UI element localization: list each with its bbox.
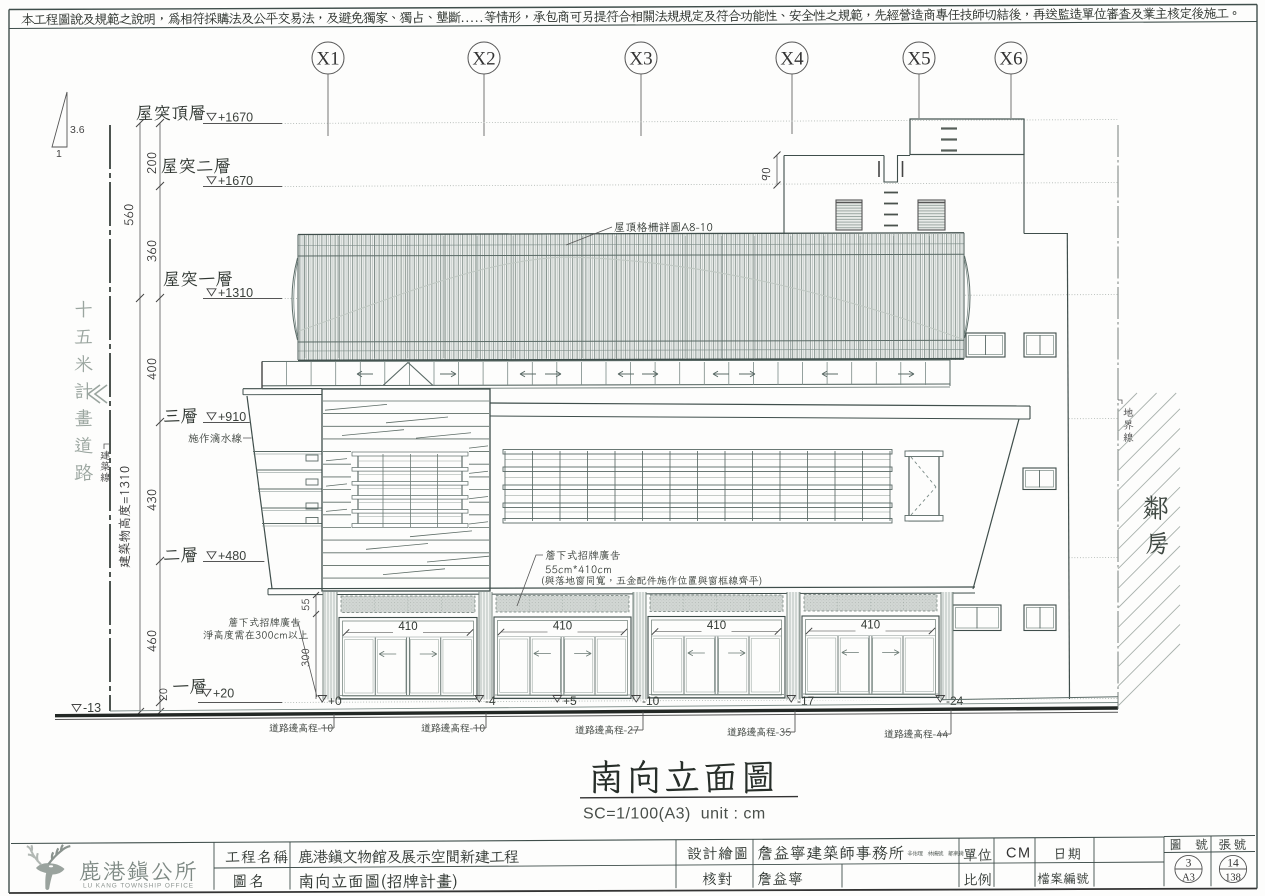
svg-text:+1670: +1670	[218, 174, 253, 188]
svg-text:X5: X5	[907, 49, 930, 70]
svg-text:CM: CM	[1006, 846, 1032, 862]
svg-text:+5: +5	[563, 694, 577, 708]
svg-text:3: 3	[1186, 858, 1192, 870]
svg-text:14: 14	[1227, 858, 1239, 870]
svg-text:410: 410	[861, 620, 880, 632]
svg-text:-13: -13	[83, 701, 101, 715]
svg-text:410: 410	[707, 620, 726, 632]
svg-text:X6: X6	[999, 49, 1022, 70]
svg-text:A3: A3	[1182, 873, 1195, 884]
svg-text:+0: +0	[328, 694, 342, 708]
svg-text:LU KANG TOWNSHIP OFFICE: LU KANG TOWNSHIP OFFICE	[83, 883, 194, 890]
svg-text:+480: +480	[218, 549, 246, 563]
svg-text:-17: -17	[797, 694, 815, 708]
svg-text:+910: +910	[218, 410, 246, 424]
svg-text:-10: -10	[642, 694, 660, 708]
svg-text:X3: X3	[629, 49, 652, 70]
svg-text:410: 410	[553, 621, 572, 633]
svg-text:+1310: +1310	[218, 286, 253, 300]
svg-text:-4: -4	[485, 694, 496, 708]
svg-text:SC=1/100(A3) unit : cm: SC=1/100(A3) unit : cm	[583, 806, 766, 823]
svg-text:+1670: +1670	[218, 111, 253, 125]
svg-text:X4: X4	[780, 49, 804, 70]
svg-text:X1: X1	[316, 49, 339, 70]
svg-text:3.6: 3.6	[70, 124, 85, 136]
svg-text:+20: +20	[213, 687, 234, 701]
svg-text:-24: -24	[946, 694, 964, 708]
svg-text:410: 410	[398, 621, 417, 633]
svg-text:1: 1	[56, 148, 62, 160]
svg-text:X2: X2	[472, 49, 495, 70]
svg-text:138: 138	[1225, 873, 1241, 884]
